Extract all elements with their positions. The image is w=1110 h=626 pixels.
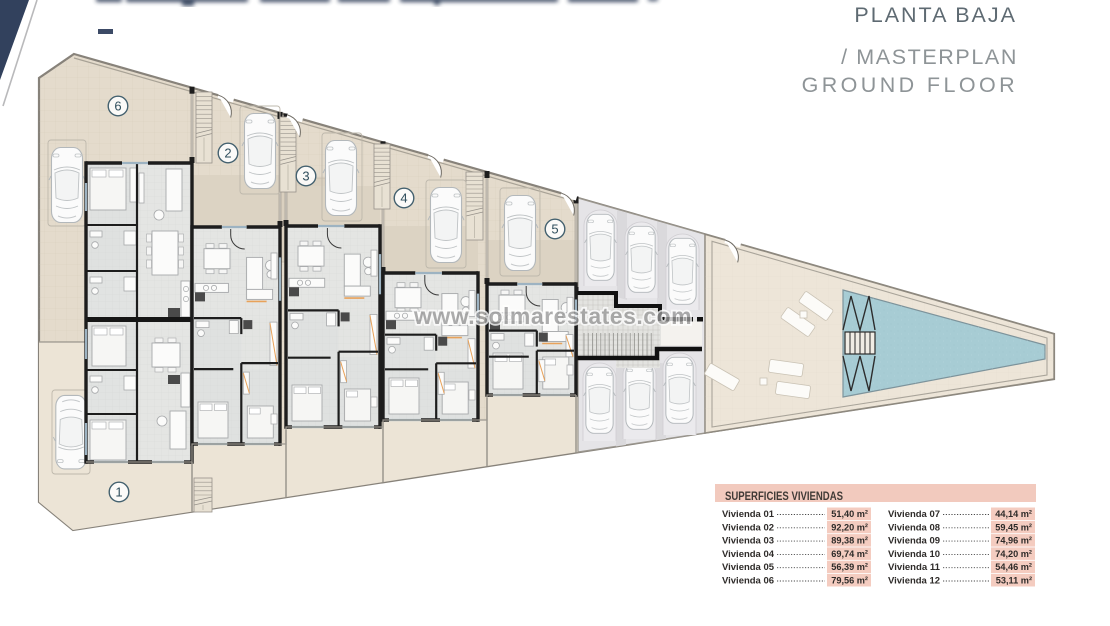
svg-text:www.solmarestates.com: www.solmarestates.com — [413, 303, 692, 329]
svg-text:Vivienda 09: Vivienda 09 — [888, 536, 940, 546]
svg-text:GROUND FLOOR: GROUND FLOOR — [802, 73, 1018, 97]
svg-text:4: 4 — [400, 191, 407, 206]
svg-text:89,38 m²: 89,38 m² — [831, 536, 868, 546]
svg-text:2: 2 — [224, 146, 231, 161]
svg-text:Vivienda 04: Vivienda 04 — [722, 549, 775, 559]
svg-text:74,20 m²: 74,20 m² — [995, 549, 1032, 559]
svg-text:53,11 m²: 53,11 m² — [996, 576, 1032, 586]
svg-text:Vivienda 12: Vivienda 12 — [888, 576, 940, 586]
svg-text:3: 3 — [302, 169, 309, 184]
svg-text:5: 5 — [551, 222, 558, 237]
svg-text:Vivienda 11: Vivienda 11 — [888, 562, 940, 572]
svg-text:74,96 m²: 74,96 m² — [995, 536, 1032, 546]
svg-text:Vivienda 08: Vivienda 08 — [888, 522, 940, 532]
svg-text:Vivienda 02: Vivienda 02 — [722, 522, 774, 532]
svg-text:92,20 m²: 92,20 m² — [831, 522, 868, 532]
svg-text:59,45 m²: 59,45 m² — [995, 522, 1032, 532]
svg-text:79,56 m²: 79,56 m² — [831, 576, 868, 586]
svg-text:/ MASTERPLAN: / MASTERPLAN — [841, 45, 1018, 69]
svg-text:Vivienda 01: Vivienda 01 — [722, 509, 774, 519]
svg-text:56,39 m²: 56,39 m² — [831, 562, 868, 572]
svg-text:Vivienda 06: Vivienda 06 — [722, 576, 774, 586]
svg-text:44,14 m²: 44,14 m² — [995, 509, 1032, 519]
svg-text:Vivienda 05: Vivienda 05 — [722, 562, 774, 572]
svg-text:Vivienda 10: Vivienda 10 — [888, 549, 940, 559]
svg-text:6: 6 — [114, 99, 121, 114]
svg-text:1: 1 — [115, 485, 122, 500]
svg-text:51,40 m²: 51,40 m² — [831, 509, 868, 519]
svg-text:Vivienda 03: Vivienda 03 — [722, 536, 774, 546]
svg-text:54,46 m²: 54,46 m² — [995, 562, 1032, 572]
svg-text:SUPERFICIES VIVIENDAS: SUPERFICIES VIVIENDAS — [725, 489, 843, 503]
svg-text:PLANTA BAJA: PLANTA BAJA — [854, 3, 1017, 27]
svg-text:Vivienda 07: Vivienda 07 — [888, 509, 940, 519]
svg-text:69,74 m²: 69,74 m² — [831, 549, 868, 559]
